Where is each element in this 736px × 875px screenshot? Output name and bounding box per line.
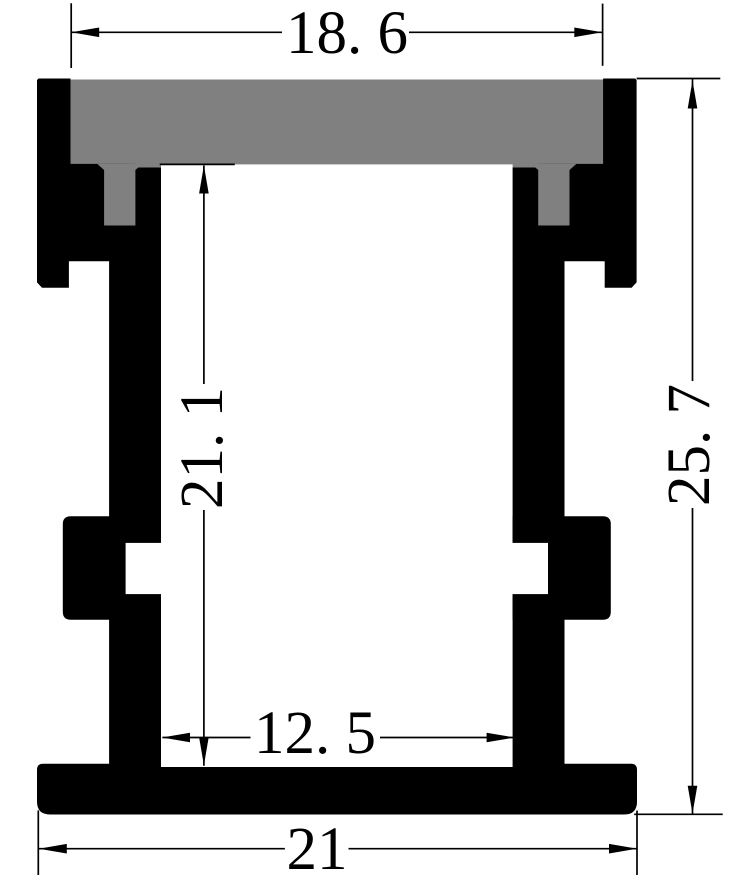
svg-text:18. 6: 18. 6 xyxy=(286,0,408,67)
svg-text:25. 7: 25. 7 xyxy=(656,384,723,506)
svg-text:12. 5: 12. 5 xyxy=(254,700,376,767)
svg-text:21. 1: 21. 1 xyxy=(169,387,236,509)
svg-text:21: 21 xyxy=(287,816,348,875)
